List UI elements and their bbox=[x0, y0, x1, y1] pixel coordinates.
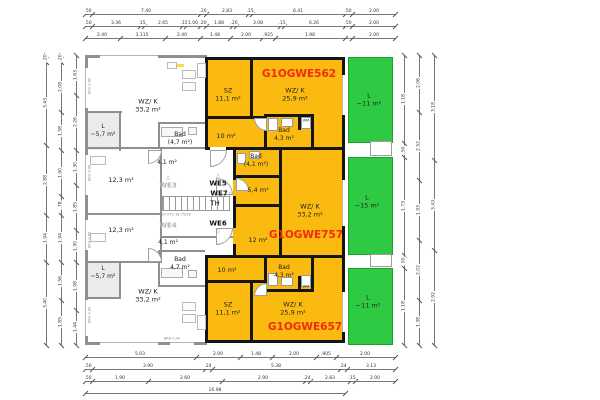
dim-label: 2.00 bbox=[240, 33, 252, 38]
unit-code-757: G1OGWE757 bbox=[269, 229, 343, 243]
dim-label: 1.58 bbox=[59, 125, 64, 137]
dim-label: 3.43 bbox=[44, 97, 49, 109]
dim-label: 1.94 bbox=[44, 232, 49, 244]
dim-label: .905 bbox=[320, 352, 332, 357]
window-note-3: BRH 0.90 bbox=[88, 232, 93, 248]
floor-plan-canvas: WZ/ K33,2 m²L~5,7 m²Bad(4,7 m²)4,1 m²12,… bbox=[0, 0, 600, 400]
dim-label: 7.40 bbox=[140, 9, 152, 14]
room-flur-657: 10 m² bbox=[217, 266, 236, 274]
dim-label: 16.98 bbox=[208, 388, 223, 393]
dim-label: 1.85 bbox=[74, 201, 79, 213]
tri-we5-icon: △ bbox=[216, 173, 220, 180]
dim-label: 1.88 bbox=[213, 21, 225, 26]
dim-label: .50 bbox=[402, 256, 407, 265]
label-we5: WE5 bbox=[209, 179, 226, 188]
dim-label: 2.83 bbox=[324, 376, 336, 381]
dim-label: .20 bbox=[198, 21, 207, 26]
room-loggia-bottom-left: L~5,7 m² bbox=[91, 265, 116, 281]
room-wzk-bottom-left: WZ/ K33,2 m² bbox=[135, 288, 160, 305]
dim-label: 3.36 bbox=[110, 21, 122, 26]
dim-label: .50 bbox=[402, 145, 407, 154]
dim-label: 1.18 bbox=[402, 93, 407, 105]
dim-label: .20 bbox=[229, 21, 238, 26]
unit-code-562: G1OGWE562 bbox=[262, 68, 336, 82]
room-wzk-657: WZ/ K25,9 m² bbox=[280, 301, 305, 318]
dim-label: .925 bbox=[262, 33, 274, 38]
dim-line bbox=[85, 26, 395, 27]
room-sz-top: SZ11,1 m² bbox=[215, 87, 240, 104]
dim-label: 2.08 bbox=[59, 81, 64, 93]
dim-label: 2.65 bbox=[157, 21, 169, 26]
dim-label: 3.115 bbox=[135, 33, 150, 38]
dim-label: 2.00 bbox=[368, 33, 380, 38]
dim-label: 2.00 bbox=[368, 21, 380, 26]
dim-label: 1.18 bbox=[402, 300, 407, 312]
dim-label: .20 bbox=[44, 53, 49, 62]
dim-label: 1.00 bbox=[187, 21, 199, 26]
room-123-lower: 12,3 m² bbox=[108, 226, 133, 234]
room-flur-top-left: 4,1 m² bbox=[157, 159, 177, 167]
room-sz-bottom: SZ11,1 m² bbox=[215, 301, 240, 318]
room-flur-bottom-left: 4,1 m² bbox=[158, 239, 178, 247]
dim-label: .24 bbox=[203, 364, 212, 369]
dim-label: 1.56 bbox=[59, 275, 64, 287]
dim-line bbox=[85, 14, 395, 15]
dim-label: .50 bbox=[83, 364, 92, 369]
dim-label: .50 bbox=[83, 9, 92, 14]
room-bad-top-left: Bad(4,7 m²) bbox=[168, 131, 192, 147]
dim-label: 3.18 bbox=[432, 101, 437, 113]
label-wm-bottom: WM bbox=[303, 285, 309, 290]
dim-line bbox=[85, 393, 345, 394]
window-note-5: BRH 0.40 bbox=[164, 337, 180, 342]
window-note-1: BRH 0.90 bbox=[88, 78, 93, 94]
dim-label: 2.40 bbox=[96, 33, 108, 38]
unit-code-657: G1OGWE657 bbox=[268, 321, 342, 335]
room-wzk-top-left: WZ/ K33,2 m² bbox=[135, 98, 160, 115]
room-bad-562: Bad4,3 m² bbox=[274, 127, 294, 143]
dim-label: .78 bbox=[59, 200, 64, 209]
tri-we7-icon: ▷ bbox=[229, 191, 233, 198]
dim-label: .15 bbox=[347, 376, 356, 381]
dim-label: 6.26 bbox=[308, 21, 320, 26]
room-wzk-562: WZ/ K25,9 m² bbox=[282, 87, 307, 104]
room-bad-657: Bad4,3 m² bbox=[274, 264, 294, 280]
dim-label: 2.00 bbox=[288, 352, 300, 357]
dim-label: .20 bbox=[59, 53, 64, 62]
label-we3: WE3 bbox=[159, 181, 176, 190]
window-note-2: BRH 0.90 bbox=[88, 165, 93, 181]
dim-label: 3.13 bbox=[365, 364, 377, 369]
dim-label: 1.48 bbox=[250, 352, 262, 357]
room-flur-562: 10 m² bbox=[216, 132, 235, 140]
room-123-upper: 12,3 m² bbox=[108, 176, 133, 184]
dim-label: 1.48 bbox=[209, 33, 221, 38]
label-wm-top: WM bbox=[303, 119, 309, 124]
dim-label: .20 bbox=[198, 9, 207, 14]
balcony-label-mid: L~15 m² bbox=[355, 194, 380, 211]
dim-label: 5.03 bbox=[134, 352, 146, 357]
dim-label: 2.26 bbox=[74, 116, 79, 128]
dim-label: 2.52 bbox=[417, 140, 422, 152]
dim-label: 2.00 bbox=[359, 352, 371, 357]
dim-label: 3.43 bbox=[432, 199, 437, 211]
dim-tick bbox=[393, 24, 399, 30]
dim-label: 1.30 bbox=[74, 161, 79, 173]
dim-tick bbox=[343, 391, 349, 397]
dim-label: 3.90 bbox=[142, 364, 154, 369]
room-bad-bottom-left: Bad4,7 m² bbox=[170, 256, 190, 272]
dim-label: 1.73 bbox=[402, 200, 407, 212]
dim-label: .15 bbox=[245, 9, 254, 14]
dim-label: 1.98 bbox=[304, 33, 316, 38]
room-loggia-top-left: L~5,7 m² bbox=[91, 123, 116, 139]
dim-tick bbox=[393, 379, 399, 385]
dim-tick bbox=[393, 36, 399, 42]
dim-label: 2.92 bbox=[432, 291, 437, 303]
dim-label: .15 bbox=[137, 21, 146, 26]
dim-label: 1.30 bbox=[74, 240, 79, 252]
balcony-label-top: L~11 m² bbox=[357, 92, 382, 109]
tri-we6-icon: ▽ bbox=[216, 229, 220, 236]
room-hall-757: 5,4 m² bbox=[247, 186, 268, 194]
tri-we3-icon: △ bbox=[166, 175, 170, 182]
room-bad-757: Bad(4,1 m²) bbox=[244, 153, 268, 169]
dim-label: 2.00 bbox=[212, 352, 224, 357]
dim-line bbox=[85, 38, 395, 39]
dim-label: .15 bbox=[277, 21, 286, 26]
dim-label: 6.41 bbox=[292, 9, 304, 14]
dim-label: 1.44 bbox=[74, 321, 79, 333]
dim-label: .50 bbox=[83, 376, 92, 381]
dim-label: 2.90 bbox=[257, 376, 269, 381]
label-we7: WE7 bbox=[210, 189, 227, 198]
dim-tick bbox=[393, 367, 399, 373]
balcony-divider-bottom bbox=[370, 254, 392, 267]
dim-label: 3.08 bbox=[252, 21, 264, 26]
dim-label: 1.90 bbox=[114, 376, 126, 381]
dim-tick bbox=[393, 12, 399, 18]
balcony-label-bottom: L~11 m² bbox=[356, 294, 381, 311]
dim-label: 1.94 bbox=[59, 232, 64, 244]
dim-label: .50 bbox=[343, 9, 352, 14]
dim-label: 2.83 bbox=[221, 9, 233, 14]
dim-label: 2.02 bbox=[417, 264, 422, 276]
balcony-divider-top bbox=[370, 141, 392, 156]
room-wzk-757: WZ/ K33,2 m² bbox=[297, 203, 322, 220]
dim-label: 1.93 bbox=[417, 204, 422, 216]
dim-label: .24 bbox=[338, 364, 347, 369]
dim-label: 2.60 bbox=[179, 376, 191, 381]
window-note-4: BRH 0.90 bbox=[88, 307, 93, 323]
dim-label: 1.90 bbox=[59, 167, 64, 179]
label-th: TH bbox=[210, 199, 220, 208]
dim-label: 2.06 bbox=[417, 77, 422, 89]
dim-label: .50 bbox=[83, 21, 92, 26]
dim-label: 3.40 bbox=[44, 297, 49, 309]
dim-label: 2.00 bbox=[368, 9, 380, 14]
label-we4: WE4 bbox=[159, 221, 176, 230]
dim-label: .50 bbox=[343, 21, 352, 26]
stair-note: 16 STG 18.75/28 bbox=[161, 213, 190, 218]
dim-label: 5.38 bbox=[270, 364, 282, 369]
dim-label: 2.00 bbox=[369, 376, 381, 381]
dim-label: .24 bbox=[302, 376, 311, 381]
dim-label: 1.98 bbox=[74, 280, 79, 292]
dim-label: 2.88 bbox=[44, 174, 49, 186]
dim-label: 1.38 bbox=[417, 316, 422, 328]
dim-label: 2.40 bbox=[176, 33, 188, 38]
label-we6: WE6 bbox=[209, 219, 226, 228]
door-arc-we5 bbox=[210, 150, 227, 167]
dim-label: 1.85 bbox=[59, 316, 64, 328]
dim-tick bbox=[393, 355, 399, 361]
room-sz-757: 12 m² bbox=[248, 236, 267, 244]
dim-label: 1.63 bbox=[74, 69, 79, 81]
